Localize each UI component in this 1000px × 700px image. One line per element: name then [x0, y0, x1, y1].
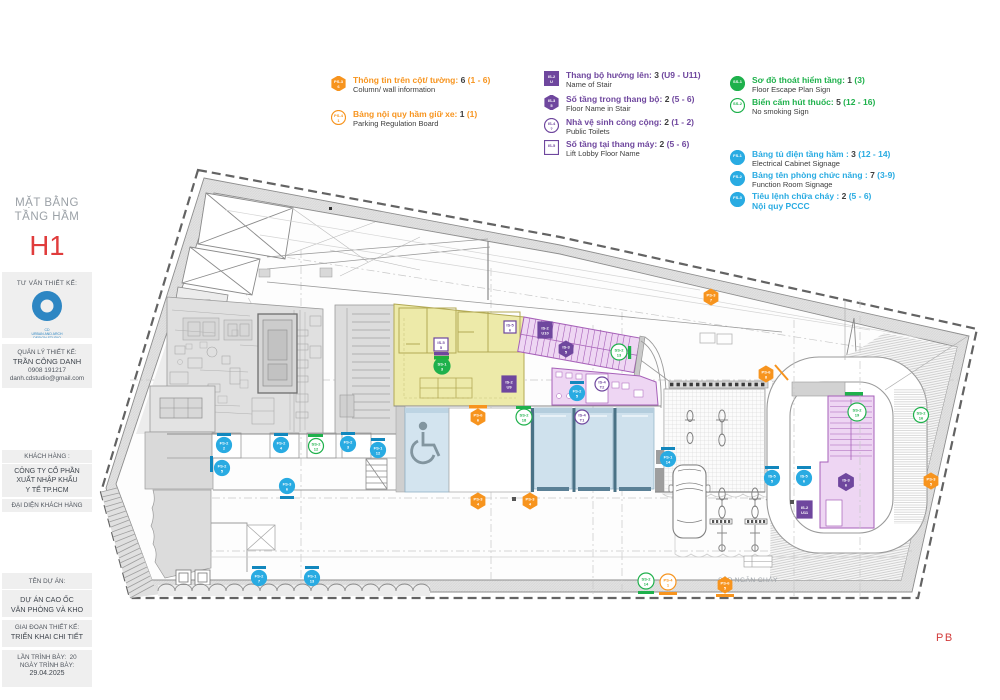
svg-text:13: 13: [310, 579, 315, 584]
svg-text:13: 13: [617, 353, 622, 358]
svg-text:U9: U9: [506, 385, 512, 390]
svg-text:FS-3: FS-3: [733, 195, 742, 200]
svg-text:18: 18: [522, 418, 527, 423]
svg-text:14: 14: [644, 582, 649, 587]
svg-text:T2: T2: [600, 385, 605, 390]
svg-text:SS-2: SS-2: [733, 101, 743, 106]
svg-text:U10: U10: [541, 331, 549, 336]
svg-text:U11: U11: [801, 510, 809, 515]
svg-text:14: 14: [666, 460, 671, 465]
svg-text:T1: T1: [580, 418, 585, 423]
svg-text:SS-1: SS-1: [733, 79, 743, 84]
svg-text:19: 19: [855, 413, 860, 418]
svg-text:FS-2: FS-2: [733, 174, 742, 179]
svg-text:IS-5: IS-5: [548, 143, 556, 148]
svg-text:12: 12: [376, 451, 381, 456]
svg-text:16: 16: [919, 416, 924, 421]
svg-text:12: 12: [314, 447, 319, 452]
svg-text:FS-1: FS-1: [733, 153, 742, 158]
svg-text:U: U: [550, 79, 553, 84]
